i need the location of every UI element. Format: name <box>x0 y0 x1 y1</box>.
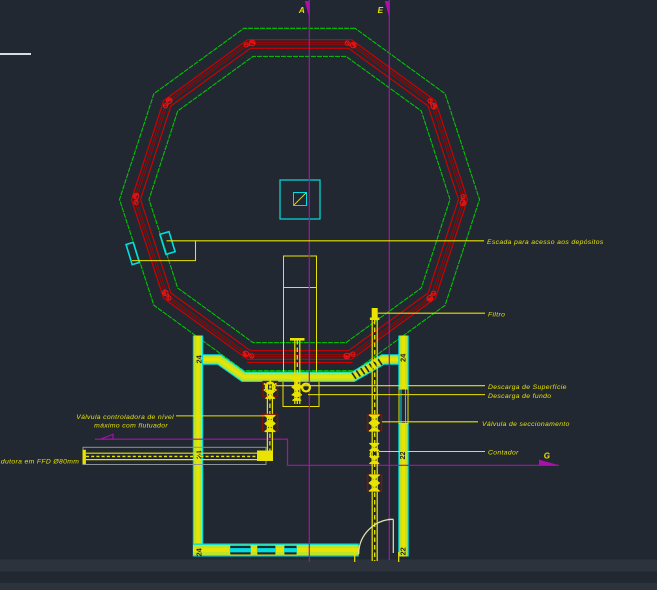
svg-text:24: 24 <box>195 450 204 459</box>
svg-text:22: 22 <box>399 547 408 555</box>
svg-text:Descarga de fundo: Descarga de fundo <box>488 393 551 400</box>
svg-text:22: 22 <box>398 451 407 459</box>
svg-text:Escada para acesso aos depósit: Escada para acesso aos depósitos <box>487 239 604 246</box>
svg-text:A: A <box>298 6 305 15</box>
svg-text:Válvula de seccionamento: Válvula de seccionamento <box>482 421 570 428</box>
svg-text:Filtro: Filtro <box>488 312 505 319</box>
svg-text:24: 24 <box>399 353 408 362</box>
svg-text:Adutora em FFD Ø80mm: Adutora em FFD Ø80mm <box>0 459 79 466</box>
svg-text:G: G <box>544 452 551 461</box>
svg-text:24: 24 <box>195 547 204 556</box>
svg-text:Válvula controladora de nível: Válvula controladora de nível <box>76 414 174 421</box>
svg-text:24: 24 <box>195 354 204 363</box>
svg-text:E: E <box>378 6 384 15</box>
svg-text:máximo com flutuador: máximo com flutuador <box>94 423 168 430</box>
svg-text:Contador: Contador <box>488 450 519 457</box>
svg-text:Descarga de Superfície: Descarga de Superfície <box>488 384 567 391</box>
